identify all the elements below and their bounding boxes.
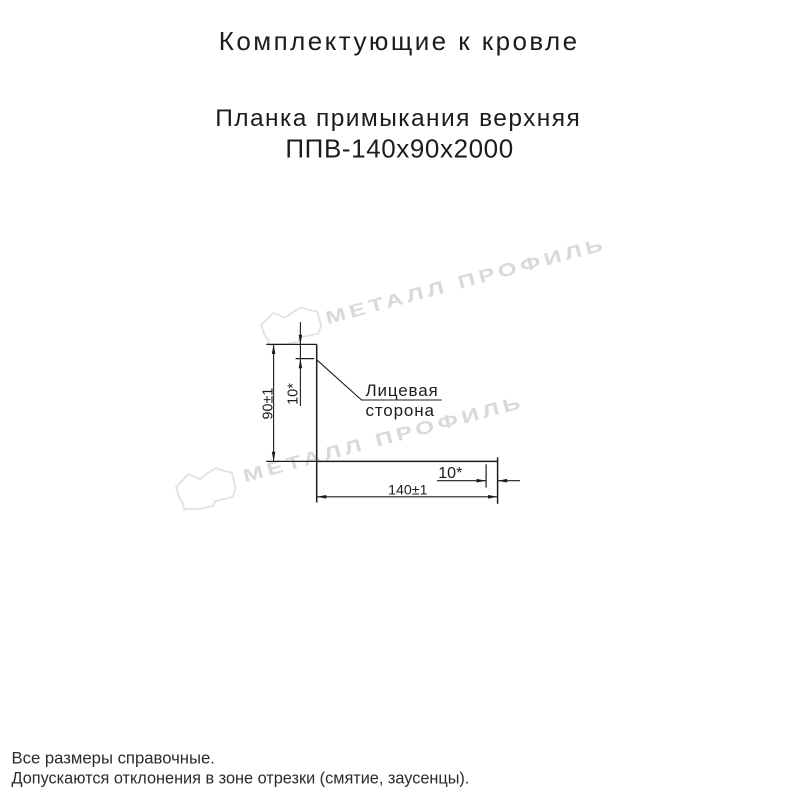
svg-text:90±1: 90±1 [260,388,276,420]
svg-text:10*: 10* [285,383,301,405]
svg-text:Все размеры справочные.: Все размеры справочные. [12,749,215,768]
svg-text:Планка примыкания верхняя: Планка примыкания верхняя [215,105,581,132]
svg-text:сторона: сторона [366,401,435,420]
svg-text:Комплектующие к кровле: Комплектующие к кровле [219,26,580,56]
svg-text:10*: 10* [438,465,462,482]
svg-text:Лицевая: Лицевая [366,381,439,400]
svg-text:Допускаются отклонения в зоне: Допускаются отклонения в зоне отрезки (с… [12,770,470,788]
svg-text:ППВ-140х90х2000: ППВ-140х90х2000 [285,134,513,164]
svg-text:140±1: 140±1 [388,482,427,498]
svg-text:МЕТАЛЛ ПРОФИЛЬ: МЕТАЛЛ ПРОФИЛЬ [323,234,608,329]
